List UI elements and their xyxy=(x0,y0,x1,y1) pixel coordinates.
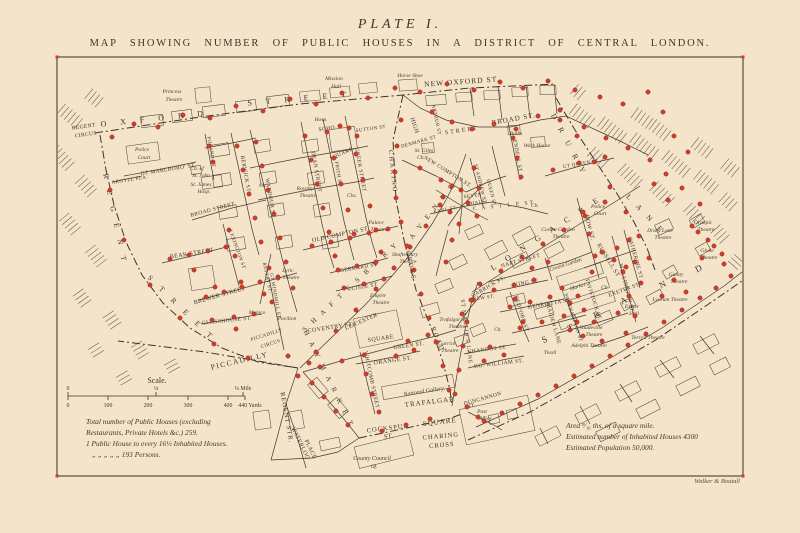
public-house-dot xyxy=(598,95,602,99)
public-house-dot xyxy=(439,178,443,182)
hatch-mark xyxy=(121,379,132,386)
public-house-dot xyxy=(393,86,397,90)
building-block xyxy=(435,278,454,293)
public-house-dot xyxy=(624,331,628,335)
place-label: Work House xyxy=(524,143,551,149)
public-house-dot xyxy=(615,246,619,250)
street-label: S xyxy=(540,334,549,345)
place-label: Market xyxy=(568,282,586,293)
public-house-dot xyxy=(660,294,664,298)
public-house-dot xyxy=(720,252,724,256)
public-house-dot xyxy=(110,135,114,139)
street-label: GLASSHOUSE ST. xyxy=(202,315,253,326)
corner-mark xyxy=(742,475,745,478)
public-house-dot xyxy=(246,356,250,360)
public-house-dot xyxy=(573,88,577,92)
street-label: CIRCUS xyxy=(74,130,97,139)
public-house-dot xyxy=(626,343,630,347)
public-house-dot xyxy=(521,320,525,324)
public-house-dot xyxy=(548,295,552,299)
public-house-dot xyxy=(108,188,112,192)
public-house-dot xyxy=(412,348,416,352)
place-label: St. James xyxy=(191,182,212,188)
place-label: Hosp. xyxy=(197,189,211,195)
place-label: St. John xyxy=(192,173,210,179)
place-label: Hosp. xyxy=(314,117,328,123)
public-house-dot xyxy=(466,201,470,205)
street-label: CHANDOS ST xyxy=(467,345,506,356)
place-label: Hall xyxy=(330,84,341,90)
public-house-dot xyxy=(336,268,340,272)
street-label: NEW OXFORD ST. xyxy=(424,74,500,88)
public-house-dot xyxy=(444,260,448,264)
public-house-dot xyxy=(581,334,585,338)
place-label: Shaftesbury xyxy=(392,251,419,258)
public-house-dot xyxy=(261,109,265,113)
public-house-dot xyxy=(652,182,656,186)
public-house-dot xyxy=(536,393,540,397)
public-house-dot xyxy=(450,184,454,188)
hatch-mark xyxy=(136,349,147,356)
street-label: BROAD STREET xyxy=(190,201,236,219)
public-house-dot xyxy=(377,410,381,414)
public-house-dot xyxy=(370,392,374,396)
street-line xyxy=(620,384,632,402)
public-house-dot xyxy=(478,282,482,286)
public-house-dot xyxy=(212,342,216,346)
street-label: BREWER STREET xyxy=(193,286,246,307)
public-house-dot xyxy=(592,160,596,164)
public-house-dot xyxy=(581,210,585,214)
public-house-dot xyxy=(266,188,270,192)
public-house-dot xyxy=(627,294,631,298)
public-house-dot xyxy=(514,127,518,131)
public-house-dot xyxy=(404,423,408,427)
public-house-dot xyxy=(234,327,238,331)
place-label: Of. xyxy=(371,463,378,470)
public-house-dot xyxy=(696,230,700,234)
note-line: Total number of Public Houses (excluding xyxy=(86,417,211,426)
public-house-dot xyxy=(513,297,517,301)
place-label: Drury Lane xyxy=(646,228,673,234)
place-label: Gaiety xyxy=(669,272,684,278)
map-content: O X F O R DS T R E E TNEW OXFORD ST.HIGH… xyxy=(50,73,744,470)
public-house-dot xyxy=(355,134,359,138)
street-label: SQUARE xyxy=(367,334,394,344)
hatch-mark xyxy=(138,352,149,359)
public-house-dot xyxy=(426,333,430,337)
public-house-dot xyxy=(698,296,702,300)
public-house-dot xyxy=(148,283,152,287)
place-label: Horse Shoe xyxy=(396,73,423,79)
building-block xyxy=(399,79,418,91)
place-label: Royalty xyxy=(296,186,314,192)
public-house-dot xyxy=(364,372,368,376)
public-house-dot xyxy=(521,86,525,90)
public-house-dot xyxy=(568,328,572,332)
public-house-dot xyxy=(156,125,160,129)
scale-tick-label: 300 xyxy=(184,403,193,409)
public-house-dot xyxy=(476,415,480,419)
public-house-dot xyxy=(587,232,591,236)
public-house-dot xyxy=(633,314,637,318)
public-house-dot xyxy=(461,344,465,348)
public-house-dot xyxy=(204,295,208,299)
public-house-dot xyxy=(616,311,620,315)
place-label: Theatre xyxy=(166,97,183,103)
public-house-dot xyxy=(247,192,251,196)
public-house-dot xyxy=(333,254,337,258)
street-line xyxy=(436,230,448,276)
building-block xyxy=(484,90,500,100)
public-house-dot xyxy=(355,264,359,268)
building-block xyxy=(456,92,473,102)
public-house-dot xyxy=(340,359,344,363)
public-house-dot xyxy=(633,260,637,264)
public-house-dot xyxy=(582,308,586,312)
place-label: Theatre xyxy=(400,259,417,265)
scale-tick-label: 0 xyxy=(67,403,70,409)
place-label: Covent Garden xyxy=(541,227,575,233)
public-house-dot xyxy=(519,175,523,179)
place-label: Court xyxy=(594,211,607,217)
hatch-mark xyxy=(166,363,177,369)
public-house-dot xyxy=(354,308,358,312)
public-house-dot xyxy=(626,146,630,150)
map-plate: PLATE I. MAP SHOWING NUMBER OF PUBLIC HO… xyxy=(0,0,800,533)
building-block xyxy=(465,224,484,240)
place-label: Ch. xyxy=(531,203,539,209)
building-block xyxy=(512,87,528,97)
public-house-dot xyxy=(684,290,688,294)
notes-right: Area ⁹⁄₁₆ ths. of a square mile. Estimat… xyxy=(565,421,698,452)
public-house-dot xyxy=(418,166,422,170)
corner-mark xyxy=(742,56,745,59)
scale-title: Scale. xyxy=(147,376,166,385)
public-house-dot xyxy=(502,353,506,357)
public-house-dot xyxy=(338,124,342,128)
public-house-dot xyxy=(576,294,580,298)
place-label: Theatre xyxy=(586,332,603,338)
note-line: Area ⁹⁄₁₆ ths. of a square mile. xyxy=(565,421,655,430)
street-label: STREET xyxy=(445,126,480,137)
public-house-dot xyxy=(551,168,555,172)
public-house-dot xyxy=(608,354,612,358)
public-house-dot xyxy=(441,195,445,199)
public-house-dot xyxy=(714,286,718,290)
place-label: Theatre xyxy=(283,275,300,281)
public-house-dot xyxy=(342,286,346,290)
public-house-dot xyxy=(512,283,516,287)
hatch-mark xyxy=(50,145,60,154)
public-house-dot xyxy=(394,196,398,200)
place-label: Olympic xyxy=(694,220,713,226)
public-house-dot xyxy=(515,156,519,160)
public-house-dot xyxy=(621,102,625,106)
public-house-dot xyxy=(321,206,325,210)
street-label: H A Y M A R K E T xyxy=(302,329,356,429)
place-label: Theatre xyxy=(373,300,390,306)
building-block xyxy=(470,323,486,337)
public-house-dot xyxy=(309,158,313,162)
hatch-mark xyxy=(168,367,179,373)
public-house-dot xyxy=(661,110,665,114)
scale-tick-label: 100 xyxy=(104,403,113,409)
public-house-dot xyxy=(168,257,172,261)
public-house-dot xyxy=(380,429,384,433)
public-house-dot xyxy=(303,134,307,138)
public-house-dot xyxy=(459,188,463,192)
place-label: County Council xyxy=(353,456,391,462)
public-house-dot xyxy=(482,419,486,423)
public-house-dot xyxy=(260,164,264,168)
note-line: Restaurants, Private Hotels &c.) 259. xyxy=(85,428,198,437)
note-line: Estimated number of Inhabited Houses 430… xyxy=(565,432,698,441)
building-block xyxy=(359,82,378,94)
place-label: Lyric xyxy=(281,268,294,274)
public-house-dot xyxy=(178,316,182,320)
place-label: Police xyxy=(590,204,606,210)
building-block xyxy=(426,94,447,105)
scale-tick-label: ¼ Mile xyxy=(235,386,252,392)
place-label: Police xyxy=(134,147,150,153)
street-label: SUTTON ST xyxy=(356,125,387,134)
public-house-dot xyxy=(583,214,587,218)
public-house-dot xyxy=(441,364,445,368)
public-house-dot xyxy=(465,405,469,409)
street-label: ARGYLL PLA. xyxy=(112,175,149,186)
public-house-dot xyxy=(457,222,461,226)
public-house-dot xyxy=(554,384,558,388)
public-house-dot xyxy=(712,244,716,248)
public-house-dot xyxy=(394,354,398,358)
public-house-dot xyxy=(340,91,344,95)
public-house-dot xyxy=(322,395,326,399)
place-label: Theatre xyxy=(553,234,570,240)
public-house-dot xyxy=(252,312,256,316)
public-house-dot xyxy=(386,227,390,231)
hatch-mark xyxy=(110,322,121,329)
public-house-dot xyxy=(450,120,454,124)
place-label: Princess xyxy=(162,89,182,95)
street-label: ORANGE ST. xyxy=(373,355,412,366)
place-label: Vaudeville xyxy=(580,325,603,331)
public-house-dot xyxy=(379,250,383,254)
public-house-dot xyxy=(706,238,710,242)
public-house-dot xyxy=(488,345,492,349)
public-house-dot xyxy=(448,210,452,214)
public-house-dot xyxy=(314,102,318,106)
public-house-dot xyxy=(520,255,524,259)
public-house-dot xyxy=(472,166,476,170)
public-house-dot xyxy=(382,277,386,281)
public-house-dot xyxy=(315,182,319,186)
public-house-dot xyxy=(392,266,396,270)
public-house-dot xyxy=(453,392,457,396)
public-house-dot xyxy=(234,104,238,108)
hatch-mark xyxy=(164,359,175,365)
public-house-dot xyxy=(366,96,370,100)
public-house-dot xyxy=(327,230,331,234)
public-house-dot xyxy=(662,320,666,324)
street-label: KG. WILLIAM ST. xyxy=(474,358,524,370)
street-label: PICCADILLY xyxy=(210,350,269,372)
public-house-dot xyxy=(528,300,532,304)
public-house-dot xyxy=(477,186,481,190)
public-house-dot xyxy=(405,244,409,248)
public-house-dot xyxy=(600,250,604,254)
public-house-dot xyxy=(352,232,356,236)
public-house-dot xyxy=(259,240,263,244)
street-label: CATHERINE ST xyxy=(626,236,644,279)
public-house-dot xyxy=(593,254,597,258)
note-line: Estimated Population 50,000. xyxy=(565,443,654,452)
street-label: REGENT STR. xyxy=(279,392,295,444)
public-house-dot xyxy=(472,88,476,92)
public-house-dot xyxy=(690,224,694,228)
hatch-mark xyxy=(88,343,99,350)
public-house-dot xyxy=(224,245,228,249)
public-house-dot xyxy=(475,214,479,218)
public-house-dot xyxy=(722,262,726,266)
hatch-mark xyxy=(116,371,127,378)
public-house-dot xyxy=(470,127,474,131)
public-house-dot xyxy=(325,130,329,134)
public-house-dot xyxy=(686,150,690,154)
public-house-dot xyxy=(235,144,239,148)
public-house-dot xyxy=(310,244,314,248)
public-house-dot xyxy=(540,320,544,324)
public-house-dot xyxy=(511,136,515,140)
public-house-dot xyxy=(518,402,522,406)
public-house-dot xyxy=(430,110,434,114)
public-house-dot xyxy=(575,320,579,324)
public-house-dot xyxy=(240,285,244,289)
public-house-dot xyxy=(680,186,684,190)
public-house-dot xyxy=(272,212,276,216)
public-house-dot xyxy=(399,118,403,122)
public-house-dot xyxy=(492,288,496,292)
public-house-dot xyxy=(624,210,628,214)
building-block xyxy=(319,437,341,451)
building-block xyxy=(676,376,701,396)
place-label: Pavilion xyxy=(277,316,297,322)
public-house-dot xyxy=(577,161,581,165)
street-line xyxy=(660,360,674,378)
place-label: Covent Garden xyxy=(549,257,583,273)
public-house-dot xyxy=(239,280,243,284)
street-label: GT MARLBORO' ST xyxy=(140,163,195,177)
place-label: Globe xyxy=(700,248,714,254)
place-label: Theatre xyxy=(442,348,459,354)
public-house-dot xyxy=(286,354,290,358)
street-label: R E G E N T xyxy=(101,173,129,267)
public-house-dot xyxy=(575,134,579,138)
street-label: SQUARE xyxy=(422,416,457,428)
hatch-mark xyxy=(103,311,114,318)
building-block xyxy=(449,254,468,270)
public-house-dot xyxy=(434,340,438,344)
public-house-dot xyxy=(457,368,461,372)
public-house-dot xyxy=(664,172,668,176)
place-label: Ch. of xyxy=(190,165,205,172)
place-label: Tivoli xyxy=(544,350,557,356)
scale-tick-label: 200 xyxy=(144,403,153,409)
street-label: LEXINGTON ST xyxy=(227,230,246,270)
public-house-dot xyxy=(346,423,350,427)
place-label: Trafalgar Sq. xyxy=(439,316,468,323)
public-house-dot xyxy=(412,268,416,272)
building-block xyxy=(420,302,440,318)
public-house-dot xyxy=(187,253,191,257)
public-house-dot xyxy=(291,286,295,290)
building-block xyxy=(540,85,556,95)
building-block xyxy=(544,241,565,258)
building-block xyxy=(253,410,271,430)
public-house-dot xyxy=(267,266,271,270)
place-label: Theatre xyxy=(655,235,672,241)
place-label: Mission xyxy=(324,76,343,82)
hatch-mark xyxy=(93,350,104,357)
public-house-dot xyxy=(339,182,343,186)
street-label: CROSS xyxy=(429,441,455,450)
place-label: Theatre xyxy=(449,324,466,330)
street-label: O X F O R D xyxy=(100,108,209,128)
public-house-dot xyxy=(347,126,351,130)
hatch-mark xyxy=(105,314,116,321)
public-house-dot xyxy=(498,80,502,84)
public-house-dot xyxy=(395,144,399,148)
public-house-dot xyxy=(447,388,451,392)
public-house-dot xyxy=(362,282,366,286)
public-house-dot xyxy=(278,236,282,240)
street-label: D xyxy=(693,262,704,274)
public-house-dot xyxy=(227,228,231,232)
place-label: Ch. xyxy=(601,285,609,291)
place-label: Theatre xyxy=(300,193,317,199)
public-house-dot xyxy=(307,361,311,365)
public-house-dot xyxy=(499,269,503,273)
public-house-dot xyxy=(592,320,596,324)
public-house-dot xyxy=(612,258,616,262)
note-line: 1 Public House to every 16½ Inhabited Ho… xyxy=(86,439,228,448)
public-house-dot xyxy=(399,220,403,224)
place-label: Ch. xyxy=(494,327,502,333)
map-canvas: O X F O R DS T R E E TNEW OXFORD ST.HIGH… xyxy=(0,0,800,533)
public-house-dot xyxy=(438,203,442,207)
public-house-dot xyxy=(284,260,288,264)
public-house-dot xyxy=(532,278,536,282)
public-house-dot xyxy=(666,198,670,202)
hatch-mark xyxy=(118,375,129,382)
public-house-dot xyxy=(296,374,300,378)
scale-tick-label: 400 xyxy=(224,403,233,409)
place-label: Empire xyxy=(369,293,387,299)
building-block xyxy=(655,357,681,378)
public-house-dot xyxy=(469,298,473,302)
public-house-dot xyxy=(418,90,422,94)
public-house-dot xyxy=(207,144,211,148)
street-label: SEVEN xyxy=(464,193,483,200)
place-label: Palace xyxy=(367,220,384,226)
public-house-dot xyxy=(211,160,215,164)
public-house-dot xyxy=(253,216,257,220)
public-house-dot xyxy=(427,316,431,320)
street-line xyxy=(492,146,505,196)
note-line: „ „ „ „ „ 193 Persons. xyxy=(92,450,161,459)
place-label: Terry's Theatre xyxy=(631,335,665,341)
public-house-dot xyxy=(374,228,378,232)
